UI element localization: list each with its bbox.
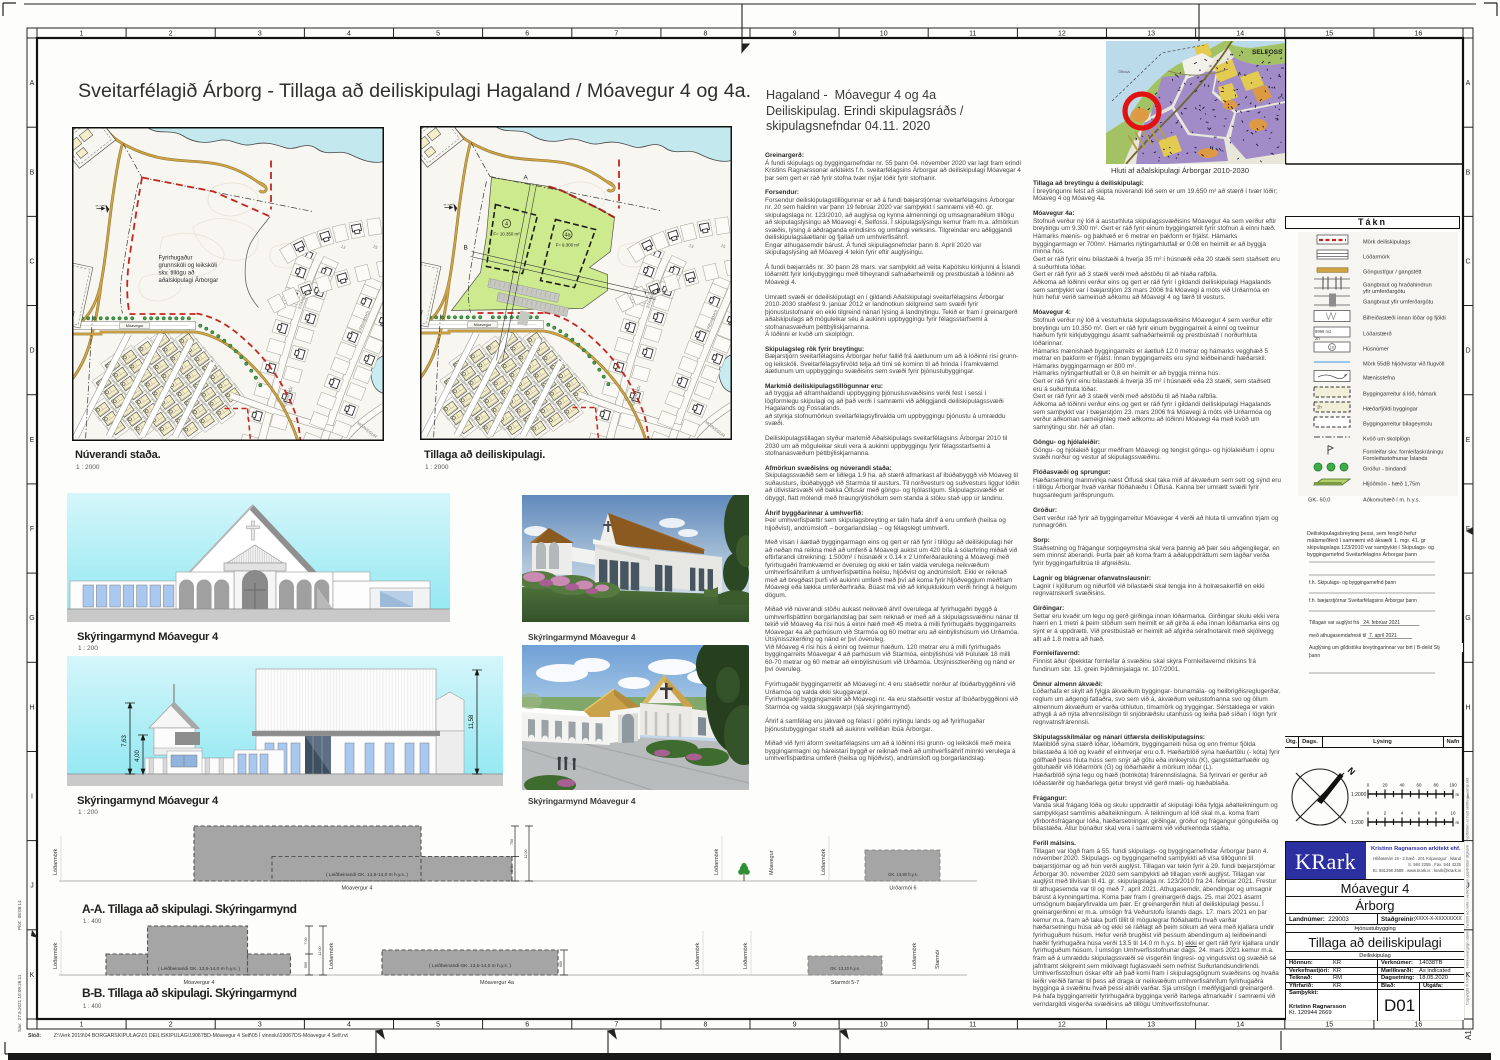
svg-text:A1: A1 <box>1464 1030 1473 1040</box>
svg-text:Fornleifar skv. fornleifaskrán: Fornleifar skv. fornleifaskráningu <box>1363 450 1443 456</box>
svg-text:Fornleifastofnunar Íslands: Fornleifastofnunar Íslands <box>1363 455 1428 462</box>
svg-text:B: B <box>30 169 35 176</box>
svg-text:f.h. Skipulags- og byggingarne: f.h. Skipulags- og byggingarnefnd þann <box>1309 580 1396 586</box>
svg-text:8: 8 <box>1435 811 1438 816</box>
svg-text:11: 11 <box>969 31 976 38</box>
svg-text:9: 9 <box>793 1022 797 1029</box>
svg-text:Lóðarmörk: Lóðarmörk <box>694 942 701 969</box>
svg-text:6: 6 <box>1418 811 1421 816</box>
svg-text:4: 4 <box>347 31 351 38</box>
svg-text:Húsnúmer: Húsnúmer <box>1363 347 1389 353</box>
svg-text:Starmói 5-7: Starmói 5-7 <box>831 980 859 986</box>
svg-text:Starmói: Starmói <box>935 950 941 969</box>
svg-text:Móavegur: Móavegur <box>769 850 775 875</box>
svg-text:A: A <box>30 80 35 87</box>
svg-text:skv. tillögu að: skv. tillögu að <box>159 270 196 277</box>
svg-text:( Leiðbeinandi GK. 13,5-14,0 m: ( Leiðbeinandi GK. 13,5-14,0 m h.y.s. ) <box>158 965 240 972</box>
svg-text:sn. mælt: sn. mælt <box>96 204 106 208</box>
svg-text:80: 80 <box>1434 783 1439 788</box>
svg-text:7.00: 7.00 <box>304 938 308 945</box>
svg-text:A-A. Tillaga að skipulagi. Ský: A-A. Tillaga að skipulagi. Skýringarmynd <box>82 902 297 916</box>
svg-text:GK- 60,0: GK- 60,0 <box>1308 498 1330 504</box>
svg-text:1: 1 <box>80 1022 84 1029</box>
svg-text:0: 0 <box>1367 783 1370 788</box>
svg-text:Mörk 55dB hljóðvistar við flug: Mörk 55dB hljóðvistar við flugvöll <box>1363 361 1444 368</box>
svg-text:Mörk deiliskipulags: Mörk deiliskipulags <box>1363 240 1410 246</box>
svg-text:Lóðarmörk: Lóðarmörk <box>52 848 59 875</box>
svg-text:1:200: 1:200 <box>1351 820 1364 826</box>
svg-text:9: 9 <box>793 31 797 38</box>
svg-text:D: D <box>29 348 34 355</box>
svg-text:7: 7 <box>614 31 618 38</box>
svg-text:12: 12 <box>1058 1022 1066 1029</box>
svg-text:2: 2 <box>169 31 173 38</box>
svg-text:8: 8 <box>703 1022 707 1029</box>
svg-text:4a: 4a <box>564 233 571 239</box>
svg-text:Móavergur 4: Móavergur 4 <box>342 886 373 892</box>
svg-text:13: 13 <box>1147 1022 1155 1029</box>
svg-text:F: F <box>30 526 34 533</box>
svg-text:Lóðarmörk: Lóðarmörk <box>52 942 59 969</box>
svg-text:3: 3 <box>258 31 262 38</box>
svg-text:sn. mælt: sn. mælt <box>444 203 454 207</box>
svg-text:m: m <box>1456 820 1460 825</box>
svg-text:Lóðarmörk: Lóðarmörk <box>742 942 749 969</box>
svg-text:C: C <box>29 259 34 266</box>
svg-text:Bifreiðastæði innan lóðar og f: Bifreiðastæði innan lóðar og fjöldi <box>1363 315 1446 322</box>
svg-text:F= 10.350 m²: F= 10.350 m² <box>493 232 520 237</box>
svg-text:Ölfusá: Ölfusá <box>1118 69 1130 74</box>
svg-text:40: 40 <box>1400 783 1405 788</box>
svg-text:Byggingarreitur á lóð, hámark: Byggingarreitur á lóð, hámark <box>1363 391 1437 398</box>
svg-text:600: 600 <box>559 961 563 967</box>
svg-text:A: A <box>1466 80 1471 87</box>
svg-text:1:2000: 1:2000 <box>1351 792 1367 798</box>
svg-text:15: 15 <box>1325 1022 1333 1029</box>
svg-text:GK. 13,10 h.y.s.: GK. 13,10 h.y.s. <box>830 966 860 971</box>
svg-text:Móavergur 4a: Móavergur 4a <box>480 980 515 986</box>
svg-text:Plot: 08:08:14: Plot: 08:08:14 <box>17 900 22 930</box>
svg-text:H: H <box>1465 704 1470 711</box>
svg-text:Lóðarmörk: Lóðarmörk <box>1363 254 1390 261</box>
svg-text:( Leiðbeinandi GK. 13,5-14,0 m: ( Leiðbeinandi GK. 13,5-14,0 m h.y.s. ) <box>429 962 511 969</box>
svg-text:12.00: 12.00 <box>524 850 528 859</box>
svg-text:B-B. Tillaga að skipulagi. Ský: B-B. Tillaga að skipulagi. Skýringarmynd <box>82 986 297 1000</box>
svg-text:500: 500 <box>304 962 308 968</box>
svg-text:3: 3 <box>258 1022 262 1029</box>
svg-text:GK. 13,80 h.y.s.: GK. 13,80 h.y.s. <box>888 872 918 877</box>
svg-text:I: I <box>31 794 33 801</box>
svg-text:6: 6 <box>525 1022 529 1029</box>
svg-text:4: 4 <box>505 222 508 228</box>
svg-text:4: 4 <box>1401 811 1404 816</box>
svg-text:10: 10 <box>880 31 888 38</box>
svg-text:f.h. bæjarstjórnar Sveitarféla: f.h. bæjarstjórnar Sveitarfélagsins Árbo… <box>1309 597 1417 604</box>
svg-text:0: 0 <box>1367 811 1370 816</box>
svg-text:Mænisstefna: Mænisstefna <box>1363 376 1396 382</box>
svg-text:5: 5 <box>436 31 440 38</box>
svg-text:B: B <box>464 245 468 252</box>
svg-text:9999 m2: 9999 m2 <box>1315 329 1332 334</box>
svg-text:Móavegur: Móavegur <box>126 323 144 328</box>
svg-text:Auglýsing um gildistöku breyti: Auglýsing um gildistöku breytingarinnar … <box>1309 644 1463 651</box>
svg-text:12: 12 <box>1058 31 1066 38</box>
svg-text:Lóðarstærð: Lóðarstærð <box>1363 331 1392 338</box>
svg-text:14: 14 <box>1236 1022 1244 1029</box>
svg-text:Kvöð um skolplögn: Kvöð um skolplögn <box>1363 436 1410 443</box>
svg-text:Móavegur: Móavegur <box>474 322 492 327</box>
svg-text:E: E <box>30 437 35 444</box>
svg-text:Slóð:: Slóð: <box>28 1032 41 1039</box>
svg-text:16: 16 <box>1415 31 1423 38</box>
svg-text:D: D <box>1465 348 1470 355</box>
svg-text:F= 9.300 m²: F= 9.300 m² <box>556 243 580 248</box>
svg-text:B: B <box>657 288 661 295</box>
svg-text:Urðarmói 6: Urðarmói 6 <box>889 885 916 892</box>
svg-text:Aðkomuhæð í m. h.y.s.: Aðkomuhæð í m. h.y.s. <box>1363 497 1421 504</box>
svg-text:14: 14 <box>1236 31 1244 38</box>
svg-text:2: 2 <box>169 1022 173 1029</box>
svg-text:Gangbraut yfir umferðargötu: Gangbraut yfir umferðargötu <box>1363 299 1433 306</box>
svg-text:20: 20 <box>1383 783 1388 788</box>
svg-text:grunnskóli og leikskóli: grunnskóli og leikskóli <box>159 263 217 269</box>
svg-text:60: 60 <box>1417 783 1422 788</box>
svg-text:með athugasemdafresti til 7.: með athugasemdafresti til 7. apríl 2021 <box>1309 632 1412 639</box>
svg-text:2: 2 <box>1384 811 1387 816</box>
svg-text:11,58: 11,58 <box>469 714 475 729</box>
svg-text:8: 8 <box>703 31 707 38</box>
svg-text:G: G <box>1465 615 1470 622</box>
svg-text:Gangbraut og hraðahindrun: Gangbraut og hraðahindrun <box>1363 282 1432 289</box>
svg-text:Byggingarreitur bílageymslu: Byggingarreitur bílageymslu <box>1363 422 1432 428</box>
svg-text:J: J <box>30 883 34 890</box>
svg-text:þann: þann <box>1309 653 1320 659</box>
svg-text:10: 10 <box>1451 811 1456 816</box>
svg-text:4,00: 4,00 <box>135 750 141 762</box>
svg-text:Lóðarmörk: Lóðarmörk <box>911 942 918 969</box>
svg-text:5: 5 <box>436 1022 440 1029</box>
svg-text:Göngustígur / gangstétt: Göngustígur / gangstétt <box>1363 270 1422 276</box>
svg-text:SELFOSS: SELFOSS <box>1252 49 1283 56</box>
svg-text:2h: 2h <box>1315 336 1320 341</box>
svg-text:10: 10 <box>1330 345 1335 350</box>
svg-text:12.00: 12.00 <box>318 947 322 956</box>
svg-text:B: B <box>1466 169 1471 176</box>
svg-text:yfir umferðargötu: yfir umferðargötu <box>1363 288 1405 295</box>
svg-text:( Leiðbeinandi GK. 13,5-14,0 m: ( Leiðbeinandi GK. 13,5-14,0 m h.y.s. ) <box>326 871 408 878</box>
svg-text:1 : 400: 1 : 400 <box>83 919 102 925</box>
svg-text:N: N <box>1346 765 1358 777</box>
svg-text:Lóðarmörk: Lóðarmörk <box>713 848 720 875</box>
svg-text:2h: 2h <box>1317 405 1322 410</box>
svg-text:11: 11 <box>969 1022 976 1029</box>
svg-text:Sav: 27.5.2021 10:09:26:11: Sav: 27.5.2021 10:09:26:11 <box>17 974 22 1032</box>
svg-text:700: 700 <box>510 839 514 845</box>
svg-text:H: H <box>29 704 34 711</box>
svg-text:m: m <box>1456 792 1460 797</box>
svg-text:500: 500 <box>510 866 514 872</box>
svg-text:K: K <box>30 972 35 979</box>
svg-text:A: A <box>524 175 529 182</box>
svg-text:13: 13 <box>1147 31 1155 38</box>
svg-text:aðalskipulagi Árborgar: aðalskipulagi Árborgar <box>159 277 219 284</box>
svg-text:16: 16 <box>1415 1022 1423 1029</box>
svg-text:100: 100 <box>1449 783 1457 788</box>
svg-text:F: F <box>1466 526 1470 533</box>
svg-text:E: E <box>1466 437 1471 444</box>
svg-text:Lóðarmörk: Lóðarmörk <box>328 942 335 969</box>
svg-text:Tillagan var auglýst frá 24.: Tillagan var auglýst frá 24. febrúar 202… <box>1309 620 1419 626</box>
svg-text:Gróður - bindandi: Gróður - bindandi <box>1363 466 1407 473</box>
svg-text:6: 6 <box>525 31 529 38</box>
svg-text:Hæðarfjöldi byggingar: Hæðarfjöldi byggingar <box>1363 406 1418 413</box>
svg-text:Copyright © KRark - Hönnunargö: Copyright © KRark - Hönnunargögn aðeins … <box>1465 777 1470 1005</box>
svg-text:Hljóðmön - hæð 1,75m: Hljóðmön - hæð 1,75m <box>1363 481 1420 488</box>
svg-text:Z:\Verk 2019\04 BORGARSKIPULAG: Z:\Verk 2019\04 BORGARSKIPULAG\01 DEILIS… <box>48 1032 348 1039</box>
svg-text:7: 7 <box>614 1022 618 1029</box>
svg-text:G: G <box>29 615 34 622</box>
svg-text:10: 10 <box>880 1022 888 1029</box>
svg-text:1: 1 <box>80 31 84 38</box>
svg-text:15: 15 <box>1325 31 1333 38</box>
svg-text:C: C <box>1465 259 1470 266</box>
svg-text:7,63: 7,63 <box>122 735 128 747</box>
svg-text:4: 4 <box>347 1022 351 1029</box>
svg-text:1 : 400: 1 : 400 <box>83 1004 102 1010</box>
svg-text:Lóðarmörk: Lóðarmörk <box>820 848 827 875</box>
svg-text:Fyrirhugaður: Fyrirhugaður <box>159 255 193 262</box>
